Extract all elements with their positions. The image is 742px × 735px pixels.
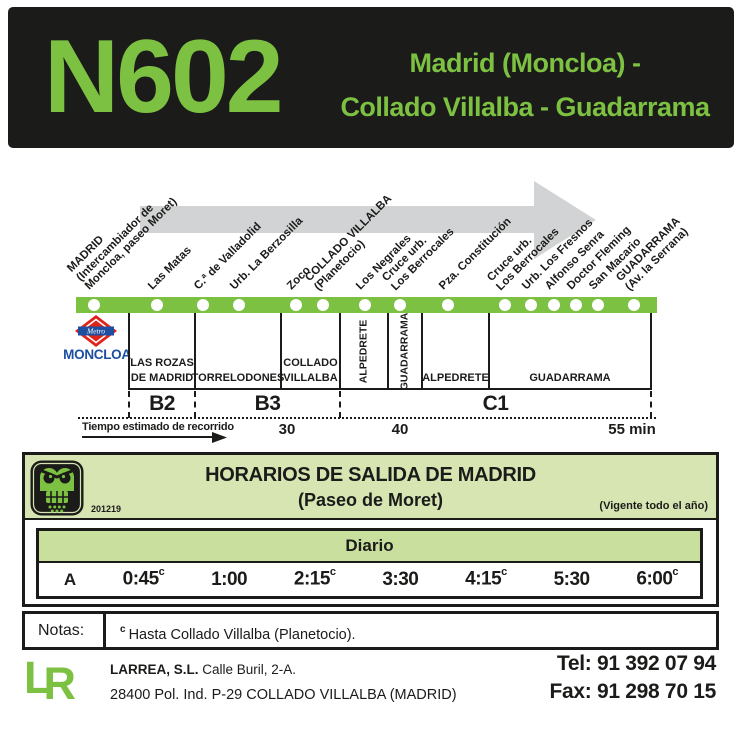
municipality-cell: COLLADOVILLALBA (281, 313, 340, 385)
stop-dot (151, 299, 163, 311)
municipality-cell: GUADARRAMA (489, 313, 651, 385)
stop-dot (548, 299, 560, 311)
day-type-header: Diario (39, 531, 700, 563)
stop-dot (570, 299, 582, 311)
travel-time-dotted-line (78, 417, 656, 419)
travel-time-value: 40 (370, 421, 430, 438)
stop-dot (290, 299, 302, 311)
direction-arrow (140, 206, 536, 233)
stop-dot (88, 299, 100, 311)
stop-dot (592, 299, 604, 311)
departure-time: 1:00 (186, 569, 272, 591)
stop-dot (442, 299, 454, 311)
phone-label: Tel: (557, 652, 597, 675)
note-body: Hasta Collado Villalba (Planetocio). (129, 627, 356, 643)
operator-address2: 28400 Pol. Ind. P-29 COLLADO VILLALBA (M… (110, 687, 457, 703)
stop-dot (317, 299, 329, 311)
notes-label: Notas: (25, 614, 106, 647)
departure-time: 3:30 (358, 569, 444, 591)
municipality-cell: TORRELODONES (195, 313, 281, 385)
phone-number: Tel: 91 392 07 94 (557, 652, 716, 676)
municipality-divider (387, 313, 389, 390)
departure-time: 2:15c (272, 568, 358, 590)
departures-title-line1: HORARIOS DE SALIDA DE MADRID (25, 462, 716, 488)
stop-dot (499, 299, 511, 311)
stop-dot (359, 299, 371, 311)
operator-address1: Calle Buril, 2-A. (202, 662, 296, 677)
operator-company: LARREA, S.L. (110, 662, 199, 677)
fax-number: Fax: 91 298 70 15 (549, 680, 716, 704)
route-diagram: Metro MONCLOA Tiempo estimado de recorri… (0, 0, 742, 470)
stop-label: Las Matas (146, 245, 194, 293)
stop-dot (394, 299, 406, 311)
fare-zone-label: B2 (129, 392, 195, 416)
times-row: A 0:45c1:002:15c3:304:15c5:306:00c (39, 563, 700, 596)
phone-value: 91 392 07 94 (597, 652, 716, 675)
departure-time: 4:15c (443, 568, 529, 590)
municipality-cell: ALPEDRETE (358, 307, 371, 397)
departures-table: Diario A 0:45c1:002:15c3:304:15c5:306:00… (36, 528, 703, 599)
municipality-cell: LAS ROZASDE MADRID (129, 313, 195, 385)
operator-logo: LR (24, 655, 84, 700)
notes-box: Notas: cHasta Collado Villalba (Planetoc… (22, 611, 719, 650)
row-label: A (39, 570, 101, 590)
fare-zone-label: C1 (340, 392, 651, 416)
municipality-cell: GUADARRAMA (399, 307, 412, 397)
fare-zone-label: B3 (195, 392, 340, 416)
stop-dot (628, 299, 640, 311)
fax-value: 91 298 70 15 (597, 680, 716, 703)
stop-dot (525, 299, 537, 311)
travel-time-arrow-icon (82, 432, 228, 444)
timetable-page: N602 Madrid (Moncloa) - Collado Villalba… (0, 0, 742, 735)
fax-label: Fax: (549, 680, 597, 703)
departures-header-band: 201219 HORARIOS DE SALIDA DE MADRID (Pas… (25, 455, 716, 520)
note-marker: c (120, 624, 126, 635)
svg-text:Metro: Metro (86, 327, 105, 336)
operator-logo-r: R (44, 658, 77, 709)
stop-dot (233, 299, 245, 311)
travel-time-value: 30 (257, 421, 317, 438)
operator-company-line: LARREA, S.L. Calle Buril, 2-A. (110, 662, 296, 677)
validity-note: (Vigente todo el año) (599, 500, 708, 512)
departure-time: 5:30 (529, 569, 615, 591)
note-text: cHasta Collado Villalba (Planetocio). (106, 614, 716, 647)
municipality-row-border (129, 388, 651, 390)
departure-time: 0:45c (101, 568, 187, 590)
departure-time: 6:00c (614, 568, 700, 590)
stop-dot (197, 299, 209, 311)
metro-logo-icon: Metro (75, 315, 117, 347)
departures-panel: 201219 HORARIOS DE SALIDA DE MADRID (Pas… (22, 452, 719, 607)
municipality-cell: ALPEDRETE (422, 313, 489, 385)
travel-time-value: 55 min (602, 421, 662, 438)
